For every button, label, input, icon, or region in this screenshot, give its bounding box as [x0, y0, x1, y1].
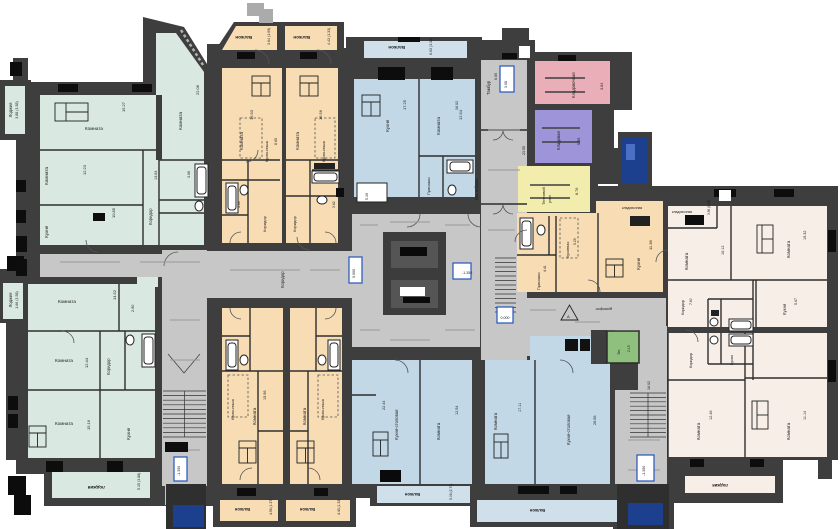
svg-text:13.64: 13.64	[154, 170, 158, 180]
svg-text:Балкон: Балкон	[404, 492, 420, 497]
svg-text:12.44: 12.44	[84, 357, 89, 368]
svg-text:Комната: Комната	[239, 132, 244, 150]
svg-text:Балкон: Балкон	[388, 45, 405, 50]
svg-text:12.54: 12.54	[455, 405, 459, 415]
svg-text:Кухня: Кухня	[126, 427, 131, 440]
svg-text:Кухня-ниша: Кухня-ниша	[231, 398, 235, 420]
svg-text:Балкон: Балкон	[234, 507, 250, 512]
svg-text:3.62: 3.62	[332, 201, 336, 208]
svg-text:22.06: 22.06	[195, 84, 200, 95]
svg-text:Комната: Комната	[55, 358, 73, 363]
svg-text:Кухня: Кухня	[730, 355, 734, 365]
svg-text:16.02: 16.02	[647, 381, 651, 390]
svg-text:Коридор: Коридор	[262, 215, 267, 232]
svg-text:Комната: Комната	[55, 421, 73, 426]
svg-text:23.55: 23.55	[522, 146, 526, 155]
svg-text:Кухня: Кухня	[636, 257, 641, 270]
svg-text:6.63 (3.32): 6.63 (3.32)	[429, 38, 433, 55]
svg-text:Комната: Комната	[436, 422, 441, 440]
svg-text:16.56: 16.56	[318, 109, 323, 120]
svg-text:5.29: 5.29	[573, 238, 577, 245]
svg-text:2.15: 2.15	[627, 345, 631, 352]
svg-text:кладовочная: кладовочная	[672, 210, 692, 214]
svg-text:5.55: 5.55	[577, 138, 581, 145]
svg-text:12.46: 12.46	[709, 410, 713, 420]
svg-text:Балкон: Балкон	[293, 35, 310, 40]
svg-text:Кухня: Кухня	[782, 304, 787, 315]
svg-text:Лоджия: Лоджия	[8, 103, 13, 118]
svg-text:-1.350: -1.350	[462, 271, 472, 275]
svg-text:4.43 (1.33): 4.43 (1.33)	[337, 499, 341, 515]
svg-text:Комната: Комната	[44, 167, 49, 185]
svg-text:Комната: Комната	[436, 117, 441, 135]
svg-text:14.52: 14.52	[112, 289, 117, 300]
svg-text:Прихожая: Прихожая	[537, 272, 541, 290]
svg-text:Кухня-столовая: Кухня-столовая	[566, 415, 571, 445]
svg-text:Коридор: Коридор	[681, 300, 685, 315]
svg-text:Эл.: Эл.	[617, 349, 621, 355]
svg-text:Кладовочная: Кладовочная	[571, 73, 576, 99]
svg-text:Комната: Комната	[786, 240, 791, 258]
svg-text:3.36 (0.88): 3.36 (0.88)	[707, 200, 711, 215]
svg-text:6.65: 6.65	[494, 73, 498, 80]
svg-text:А: А	[567, 314, 570, 319]
svg-text:3.64: 3.64	[237, 201, 241, 208]
svg-text:5.19: 5.19	[365, 193, 369, 200]
svg-text:7.60: 7.60	[689, 298, 693, 305]
svg-text:Комната: Комната	[302, 407, 307, 425]
svg-text:4.43 (1.33): 4.43 (1.33)	[327, 28, 331, 45]
svg-text:Комната: Комната	[493, 412, 498, 430]
svg-text:Тепловой: Тепловой	[541, 187, 546, 205]
svg-text:Комната: Комната	[58, 299, 76, 304]
svg-text:5.67: 5.67	[794, 298, 798, 305]
svg-text:домофон: домофон	[596, 307, 612, 311]
svg-text:16.93: 16.93	[249, 109, 254, 120]
svg-text:10.12: 10.12	[721, 245, 725, 255]
svg-text:3.06: 3.06	[187, 171, 191, 178]
svg-text:Балкон: Балкон	[529, 508, 545, 513]
svg-text:3.08: 3.08	[504, 81, 508, 88]
svg-text:8.76: 8.76	[575, 188, 579, 195]
svg-text:Комната: Комната	[295, 132, 300, 150]
svg-text:Кухня: Кухня	[385, 119, 390, 132]
svg-text:4.41: 4.41	[543, 265, 547, 272]
svg-text:Коридор: Коридор	[292, 215, 297, 232]
svg-text:Коридор: Коридор	[106, 358, 111, 375]
svg-text:12.23: 12.23	[82, 164, 87, 175]
svg-text:лоджия: лоджия	[712, 483, 728, 488]
svg-text:8.65: 8.65	[274, 138, 278, 145]
svg-text:17.11: 17.11	[518, 403, 522, 412]
svg-text:15.27: 15.27	[121, 101, 126, 112]
svg-text:Кухня-столовая: Кухня-столовая	[394, 410, 399, 440]
svg-text:5.06 (2.70): 5.06 (2.70)	[449, 484, 453, 500]
svg-text:Лоджия: Лоджия	[8, 293, 13, 308]
svg-text:-1.350: -1.350	[642, 466, 646, 476]
svg-text:лоджия: лоджия	[87, 485, 105, 490]
svg-text:Кухня: Кухня	[44, 225, 49, 238]
svg-text:3.64: 3.64	[600, 83, 604, 90]
svg-text:Комната: Комната	[684, 252, 689, 270]
svg-text:15.96: 15.96	[263, 390, 267, 400]
svg-text:10.85: 10.85	[111, 207, 116, 218]
svg-text:19.32: 19.32	[803, 230, 807, 240]
svg-text:1.66 (1.58): 1.66 (1.58)	[15, 291, 19, 308]
svg-text:3.64 (1.09): 3.64 (1.09)	[267, 28, 271, 45]
svg-text:4.56 (1.37): 4.56 (1.37)	[269, 499, 273, 515]
svg-text:16.02: 16.02	[455, 101, 459, 110]
svg-text:Кухня-ниша: Кухня-ниша	[321, 398, 325, 420]
svg-text:11.38: 11.38	[648, 240, 653, 250]
svg-text:Комната: Комната	[178, 112, 183, 130]
svg-text:Комната: Комната	[252, 407, 257, 425]
svg-text:3.88 (1.58): 3.88 (1.58)	[15, 101, 19, 118]
svg-text:кладовочная: кладовочная	[622, 206, 642, 210]
svg-text:Балкон: Балкон	[235, 35, 252, 40]
svg-text:0.000: 0.000	[352, 269, 356, 278]
svg-text:Комната: Комната	[786, 422, 791, 440]
svg-text:Кладовая: Кладовая	[556, 131, 561, 150]
svg-text:Комната: Комната	[85, 126, 103, 131]
svg-text:Кухня-ниша: Кухня-ниша	[265, 140, 269, 162]
svg-text:11.14: 11.14	[803, 411, 807, 420]
svg-text:Вестибюль: Вестибюль	[474, 178, 479, 200]
svg-text:5.15 (3.88): 5.15 (3.88)	[137, 473, 141, 490]
svg-text:Коридор: Коридор	[689, 353, 693, 368]
svg-text:Комната: Комната	[696, 422, 701, 440]
svg-text:Кухонная: Кухонная	[566, 242, 570, 258]
svg-text:-1.350: -1.350	[177, 466, 181, 476]
svg-text:узел: узел	[547, 194, 552, 203]
svg-text:26.56: 26.56	[593, 415, 597, 425]
svg-text:Коридор: Коридор	[280, 271, 285, 288]
svg-text:15.16: 15.16	[86, 419, 91, 430]
svg-text:17.25: 17.25	[402, 99, 407, 110]
svg-text:Прихожая: Прихожая	[427, 177, 431, 195]
svg-text:Балкон: Балкон	[299, 507, 315, 512]
svg-text:0.000: 0.000	[501, 316, 510, 320]
svg-text:22.44: 22.44	[382, 400, 386, 410]
svg-text:Коридор: Коридор	[148, 208, 153, 225]
svg-text:2.90: 2.90	[131, 305, 135, 312]
svg-text:Тамбур: Тамбур	[486, 80, 491, 95]
svg-text:Кухня-ниша: Кухня-ниша	[322, 140, 326, 162]
